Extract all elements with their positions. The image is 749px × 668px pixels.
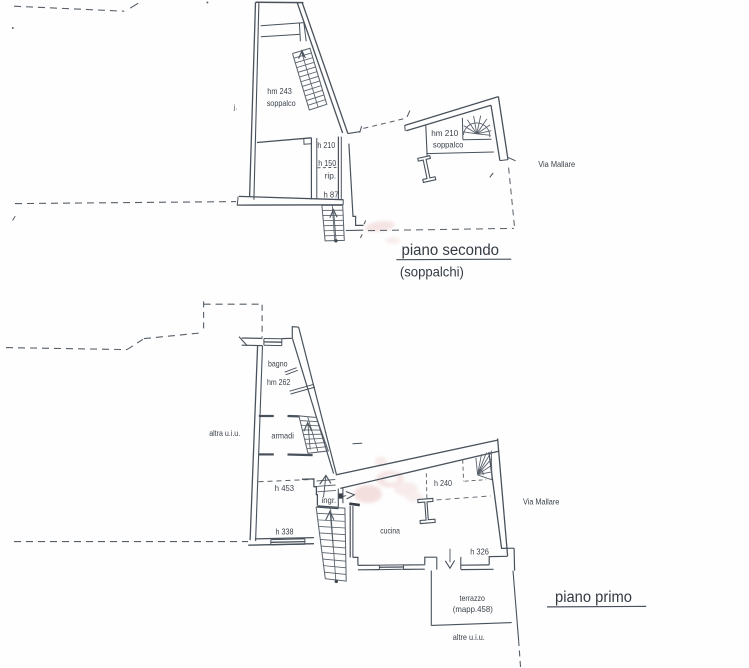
- svg-text:(soppalchi): (soppalchi): [400, 263, 464, 279]
- svg-text:terrazzo: terrazzo: [460, 593, 486, 603]
- svg-text:(mapp.458): (mapp.458): [453, 604, 493, 614]
- svg-text:h 87: h 87: [324, 189, 339, 199]
- svg-text:h 240: h 240: [434, 478, 452, 488]
- svg-text:rip.: rip.: [325, 171, 337, 181]
- svg-text:h 150: h 150: [318, 158, 336, 168]
- svg-text:piano secondo: piano secondo: [402, 242, 500, 259]
- svg-text:altre u.i.u.: altre u.i.u.: [453, 632, 485, 642]
- svg-text:h 338: h 338: [276, 526, 294, 536]
- svg-text:h 210: h 210: [317, 140, 335, 150]
- svg-text:cucina: cucina: [380, 526, 400, 536]
- svg-text:hm 262: hm 262: [267, 377, 291, 387]
- svg-text:soppalco: soppalco: [267, 98, 296, 108]
- svg-text:h 453: h 453: [275, 483, 295, 493]
- svg-text:hm 210: hm 210: [431, 128, 458, 138]
- svg-text:h 326: h 326: [470, 546, 489, 556]
- svg-text:j.: j.: [233, 105, 238, 112]
- svg-text:soppalco: soppalco: [433, 139, 464, 149]
- svg-text:Via Mallare: Via Mallare: [538, 159, 575, 169]
- svg-text:piano primo: piano primo: [555, 589, 632, 606]
- svg-text:hm 243: hm 243: [267, 86, 292, 96]
- svg-text:bagno: bagno: [268, 359, 288, 369]
- svg-text:Via Mallare: Via Mallare: [523, 496, 559, 506]
- svg-text:altra u.i.u.: altra u.i.u.: [209, 429, 240, 438]
- svg-text:armadi: armadi: [271, 430, 294, 440]
